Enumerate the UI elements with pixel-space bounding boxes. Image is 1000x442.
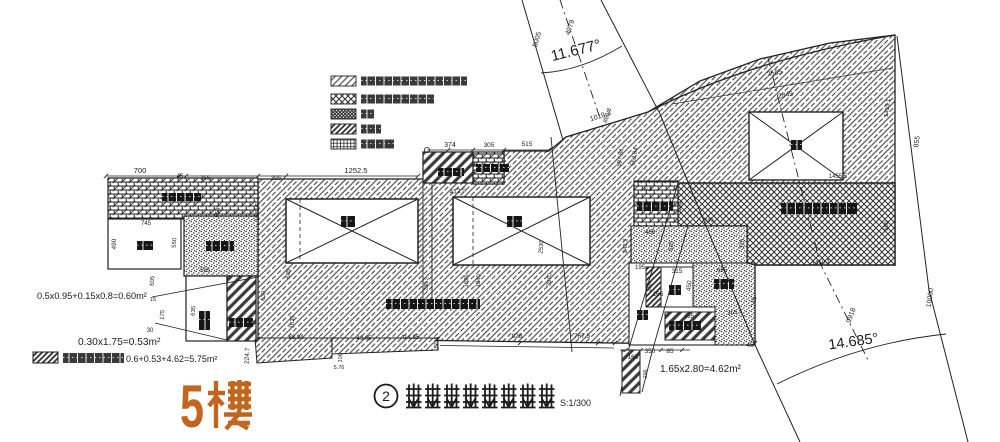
svg-text:88.94: 88.94: [288, 335, 304, 341]
svg-text:1940: 1940: [475, 273, 482, 287]
svg-text:700: 700: [134, 166, 147, 175]
svg-text:243.2: 243.2: [623, 238, 630, 254]
svg-text:635: 635: [191, 305, 198, 316]
svg-text:45: 45: [177, 174, 184, 180]
svg-text:11.677°: 11.677°: [549, 36, 602, 65]
svg-text:0.5x0.95+0.15x0.8=0.60m²: 0.5x0.95+0.15x0.8=0.60m²: [37, 291, 147, 301]
svg-text:745: 745: [751, 296, 759, 308]
svg-text:105: 105: [338, 353, 345, 363]
svg-text:350: 350: [645, 348, 656, 355]
svg-text:0.30x1.75=0.53m²: 0.30x1.75=0.53m²: [78, 337, 161, 348]
svg-text:650: 650: [884, 220, 891, 231]
svg-text:605: 605: [150, 275, 157, 286]
svg-text:1.65x2.80=4.62m²: 1.65x2.80=4.62m²: [660, 364, 742, 375]
svg-text:550: 550: [172, 237, 179, 248]
svg-text:828: 828: [512, 333, 523, 340]
svg-text:295: 295: [643, 369, 650, 379]
svg-text:10000: 10000: [926, 288, 936, 308]
svg-text:30: 30: [147, 328, 154, 334]
svg-text:315: 315: [672, 268, 683, 275]
svg-text:490: 490: [111, 238, 118, 249]
svg-text:374: 374: [444, 142, 456, 149]
svg-text:3970: 3970: [546, 272, 553, 286]
svg-text:49.05: 49.05: [356, 336, 372, 342]
svg-text:767.5: 767.5: [574, 333, 591, 340]
svg-text:1245: 1245: [433, 337, 440, 350]
svg-text:1635.5: 1635.5: [255, 202, 262, 221]
svg-text:855: 855: [913, 135, 922, 148]
svg-text:5: 5: [180, 374, 204, 441]
svg-text:165: 165: [653, 291, 664, 298]
svg-text:305: 305: [484, 142, 495, 149]
svg-text:2: 2: [382, 388, 390, 404]
svg-text:630: 630: [261, 290, 268, 301]
svg-text:165: 165: [628, 354, 639, 361]
svg-text:175: 175: [160, 309, 167, 320]
svg-text:9918: 9918: [846, 307, 858, 324]
svg-text:15: 15: [150, 297, 156, 303]
svg-text:485: 485: [684, 314, 695, 320]
svg-text:85: 85: [666, 348, 674, 355]
svg-text:1450.1: 1450.1: [811, 259, 831, 267]
svg-text:1695: 1695: [463, 273, 470, 287]
svg-text:375: 375: [740, 238, 747, 249]
svg-text:14.685°: 14.685°: [827, 331, 879, 354]
svg-text:195: 195: [635, 265, 646, 271]
svg-text:N-3: N-3: [644, 187, 653, 193]
svg-text:280.2: 280.2: [424, 277, 431, 291]
svg-text:860.3: 860.3: [603, 107, 614, 124]
svg-text:0.6+0.53+4.62=5.75m²: 0.6+0.53+4.62=5.75m²: [126, 354, 217, 364]
svg-text:5.76: 5.76: [334, 365, 345, 371]
svg-text:414.85: 414.85: [401, 335, 420, 341]
svg-text:685: 685: [286, 268, 293, 279]
svg-text:5005: 5005: [532, 31, 543, 48]
svg-text:2530: 2530: [538, 239, 545, 253]
svg-text:755: 755: [200, 175, 211, 182]
svg-text:224.7: 224.7: [244, 347, 252, 364]
svg-text:450: 450: [686, 280, 694, 292]
svg-text:1455.5: 1455.5: [829, 174, 848, 180]
svg-text:515: 515: [522, 141, 533, 148]
svg-text:395: 395: [271, 175, 282, 182]
svg-text:595: 595: [200, 268, 211, 274]
svg-text:1252.5: 1252.5: [345, 166, 368, 175]
svg-text:45: 45: [746, 342, 754, 349]
svg-text:695: 695: [717, 268, 728, 274]
svg-text:449: 449: [678, 201, 685, 212]
svg-text:S:1/300: S:1/300: [560, 398, 591, 408]
svg-text:1635: 1635: [289, 314, 296, 328]
svg-text:466: 466: [645, 230, 656, 236]
svg-text:525: 525: [669, 240, 676, 251]
svg-text:745: 745: [141, 221, 152, 227]
svg-text:4979: 4979: [565, 19, 577, 36]
